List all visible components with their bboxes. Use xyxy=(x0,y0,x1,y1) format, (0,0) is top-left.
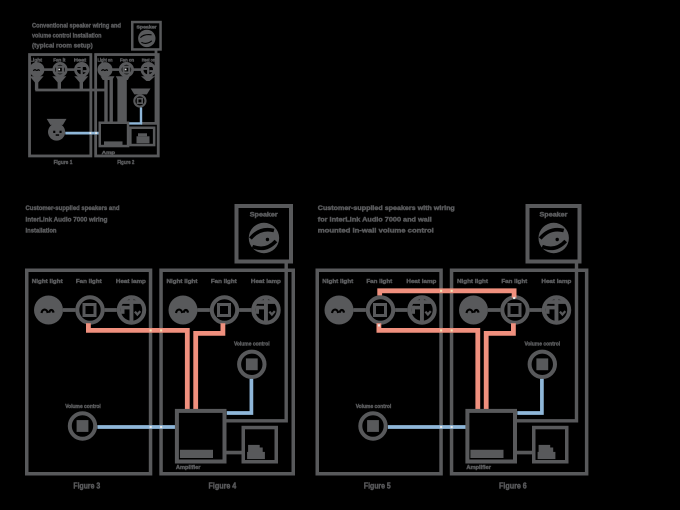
svg-text:Customer-supplied speakers and: Customer-supplied speakers and xyxy=(26,205,120,212)
svg-text:Heat lamp: Heat lamp xyxy=(541,279,571,285)
svg-text:mounted in-wall volume control: mounted in-wall volume control xyxy=(318,228,434,235)
svg-text:Volume control: Volume control xyxy=(356,404,392,410)
svg-text:Heat lamp: Heat lamp xyxy=(251,279,281,285)
svg-text:Night light: Night light xyxy=(32,279,63,285)
svg-text:Volume control: Volume control xyxy=(65,404,101,410)
svg-text:installation: installation xyxy=(26,228,57,235)
svg-text:(typical room setup): (typical room setup) xyxy=(32,42,93,49)
svg-text:Volume control: Volume control xyxy=(524,342,560,348)
svg-text:Figure 2: Figure 2 xyxy=(117,160,134,166)
svg-text:for InterLink Audio 7000 and w: for InterLink Audio 7000 and wall xyxy=(318,216,432,223)
svg-text:Night light: Night light xyxy=(322,279,353,285)
svg-text:Customer-supplied speakers wit: Customer-supplied speakers with wiring xyxy=(318,205,455,212)
svg-text:Night light: Night light xyxy=(457,279,488,285)
svg-text:InterLink Audio 7000 wiring: InterLink Audio 7000 wiring xyxy=(26,216,108,223)
svg-text:Fan light: Fan light xyxy=(76,279,102,285)
svg-text:Volume control: Volume control xyxy=(234,342,270,348)
svg-text:Figure 6: Figure 6 xyxy=(499,482,527,491)
svg-text:Amplifier: Amplifier xyxy=(176,465,201,471)
svg-text:Fan light: Fan light xyxy=(501,279,527,285)
svg-text:Figure 3: Figure 3 xyxy=(73,482,100,491)
svg-text:Conventional speaker wiring an: Conventional speaker wiring and xyxy=(32,22,121,29)
svg-text:Heat lamp: Heat lamp xyxy=(116,279,146,285)
svg-text:Figure 4: Figure 4 xyxy=(209,482,237,491)
svg-text:Night light: Night light xyxy=(167,279,198,285)
svg-text:Heat lamp: Heat lamp xyxy=(406,279,436,285)
svg-text:Figure 1: Figure 1 xyxy=(54,160,73,166)
svg-text:Fan light: Fan light xyxy=(366,279,392,285)
svg-text:Fan light: Fan light xyxy=(211,279,237,285)
svg-text:Speaker: Speaker xyxy=(250,212,279,219)
svg-text:Amplifier: Amplifier xyxy=(466,465,491,471)
svg-text:Amp: Amp xyxy=(102,150,116,155)
svg-text:Figure 5: Figure 5 xyxy=(364,482,391,491)
svg-text:Speaker: Speaker xyxy=(137,25,157,30)
svg-text:volume control installation: volume control installation xyxy=(32,32,102,39)
svg-text:Speaker: Speaker xyxy=(540,212,569,219)
